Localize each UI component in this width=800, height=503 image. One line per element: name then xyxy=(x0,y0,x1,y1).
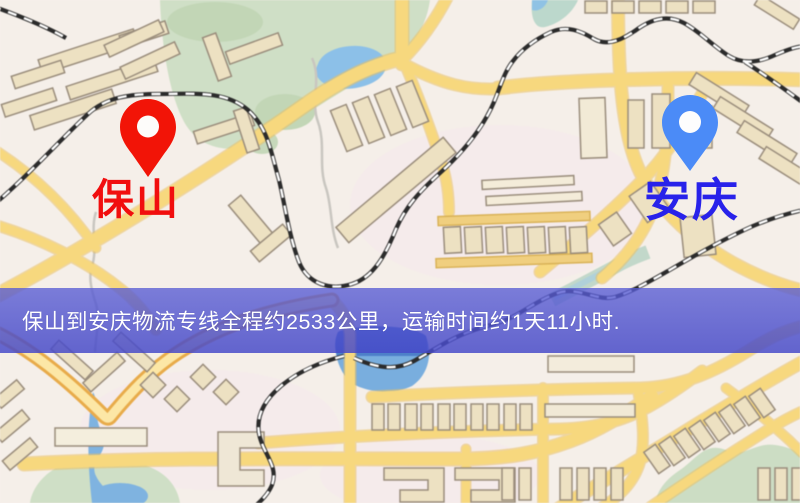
logistics-map-image: 保山 安庆 保山到安庆物流专线全程约2533公里，运输时间约1天11小时. xyxy=(0,0,800,503)
map-canvas[interactable] xyxy=(0,0,800,503)
map-pin-icon xyxy=(120,99,176,177)
destination-pin[interactable] xyxy=(662,95,718,172)
route-info-banner: 保山到安庆物流专线全程约2533公里，运输时间约1天11小时. xyxy=(0,288,800,353)
origin-pin[interactable] xyxy=(120,99,176,178)
pin-hole xyxy=(679,111,701,133)
origin-label: 保山 xyxy=(92,179,180,221)
route-info-text: 保山到安庆物流专线全程约2533公里，运输时间约1天11小时. xyxy=(0,305,620,336)
destination-label: 安庆 xyxy=(644,177,740,223)
pin-hole xyxy=(137,116,159,138)
